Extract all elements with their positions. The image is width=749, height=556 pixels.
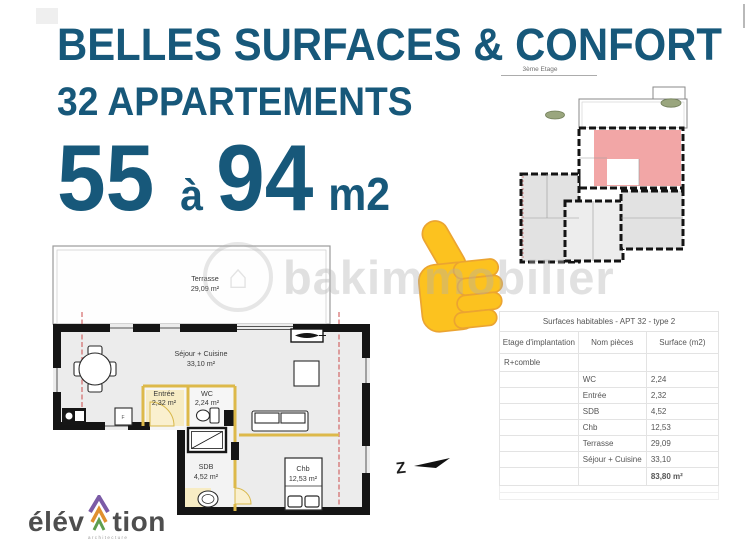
edge-tick-line — [743, 4, 745, 28]
table-row: Terrasse 29,09 — [500, 436, 719, 452]
logo-text-suffix: tion — [113, 511, 166, 533]
ghost-square — [36, 8, 58, 24]
surface-table-title-row: Surfaces habitables - APT 32 - type 2 — [500, 312, 719, 332]
main-floor-plan: F — [38, 228, 406, 523]
table-row: SDB 4,52 — [500, 404, 719, 420]
total-surface: 83,80 m² — [646, 468, 718, 486]
thumbs-up-emoji — [390, 212, 514, 341]
flyer-artboard: BELLES SURFACES & CONFORT 32 APPARTEMENT… — [0, 0, 749, 556]
sofa — [252, 411, 308, 431]
bedroom-area: 12,53 m² — [289, 474, 318, 483]
mini-plan-floor-label: 3ème Etage — [522, 66, 557, 73]
entry-area: 2,32 m² — [152, 398, 177, 407]
wc-area: 2,24 m² — [195, 398, 220, 407]
entry-label: Entrée — [153, 389, 174, 398]
agency-logo: élév tion architecture — [28, 495, 166, 540]
radiator-vent — [291, 329, 326, 342]
size-connector: à — [180, 171, 203, 221]
mini-floor-plan: 3ème Etage — [495, 58, 700, 273]
table-row: Séjour + Cuisine 33,10 — [500, 452, 719, 468]
table-total-row: 83,80 m² — [500, 468, 719, 486]
terrace-label: Terrasse — [191, 274, 219, 283]
surface-table-header-row: Etage d'implantation Nom pièces Surface … — [500, 332, 719, 354]
bathroom-area: 4,52 m² — [194, 472, 219, 481]
table-row: WC 2,24 — [500, 372, 719, 388]
kitchen-appliance-mark: F — [121, 415, 124, 421]
col-header-surface: Surface (m2) — [646, 332, 718, 354]
living-label: Séjour + Cuisine — [175, 349, 228, 358]
surface-table: Surfaces habitables - APT 32 - type 2 Et… — [499, 311, 719, 500]
size-from: 55 — [57, 136, 154, 221]
side-table — [294, 361, 319, 386]
size-unit: m2 — [328, 167, 390, 221]
terrace-area: 29,09 m² — [191, 284, 220, 293]
logo-chevron-a-icon — [86, 495, 112, 533]
north-label: Z — [395, 460, 407, 478]
bedroom-label: Chb — [296, 464, 309, 473]
bathroom-label: SDB — [199, 462, 214, 471]
col-header-pieces: Nom pièces — [578, 332, 646, 354]
table-empty-row — [500, 493, 719, 500]
surface-table-title: Surfaces habitables - APT 32 - type 2 — [500, 312, 719, 332]
size-to: 94 — [216, 136, 313, 221]
table-row: Entrée 2,32 — [500, 388, 719, 404]
living-area: 33,10 m² — [187, 359, 216, 368]
col-header-etage: Etage d'implantation — [500, 332, 579, 354]
table-empty-row — [500, 486, 719, 493]
washbasin — [198, 491, 218, 507]
wc-label: WC — [201, 389, 213, 398]
group-label: R+comble — [500, 354, 579, 372]
table-group-row: R+comble — [500, 354, 719, 372]
north-arrow-head — [414, 458, 450, 468]
table-row: Chb 12,53 — [500, 420, 719, 436]
logo-text-prefix: élév — [28, 511, 85, 533]
shower — [188, 428, 226, 452]
mini-plan-highlight-apartment — [594, 130, 681, 186]
north-arrow: Z — [390, 452, 452, 480]
